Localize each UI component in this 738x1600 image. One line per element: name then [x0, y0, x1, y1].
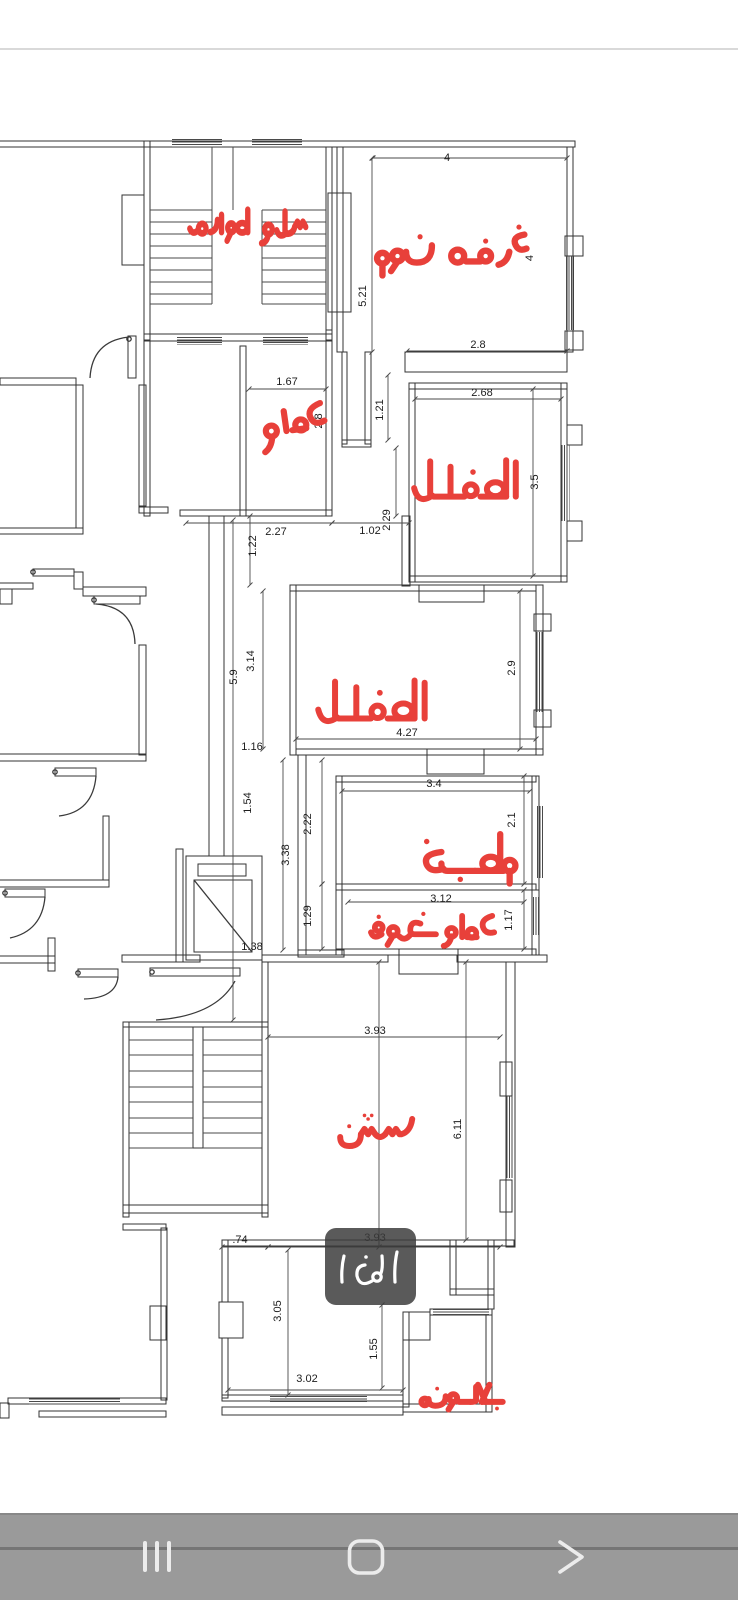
svg-text:5.21: 5.21 — [357, 285, 369, 306]
svg-text:5.9: 5.9 — [228, 669, 240, 684]
svg-text:1.54: 1.54 — [242, 792, 254, 813]
svg-text:2.1: 2.1 — [506, 812, 518, 827]
svg-text:2.8: 2.8 — [470, 339, 485, 351]
svg-text:3.12: 3.12 — [430, 893, 451, 905]
svg-text:3.4: 3.4 — [426, 778, 441, 790]
svg-text:2.68: 2.68 — [471, 387, 492, 399]
svg-text:4: 4 — [524, 255, 536, 261]
svg-text:1.17: 1.17 — [503, 909, 515, 930]
svg-text:3.5: 3.5 — [529, 474, 541, 489]
svg-text:.74: .74 — [232, 1234, 247, 1246]
svg-text:2.29: 2.29 — [381, 509, 393, 530]
svg-text:1.16: 1.16 — [241, 741, 262, 753]
svg-text:1.55: 1.55 — [368, 1338, 380, 1359]
svg-text:3.02: 3.02 — [296, 1373, 317, 1385]
svg-text:1.38: 1.38 — [241, 941, 262, 953]
svg-text:4.27: 4.27 — [396, 727, 417, 739]
svg-text:1.21: 1.21 — [374, 399, 386, 420]
svg-text:6.11: 6.11 — [452, 1119, 464, 1140]
svg-text:4: 4 — [444, 152, 450, 164]
svg-text:2.9: 2.9 — [506, 660, 518, 675]
svg-text:3.38: 3.38 — [280, 844, 292, 865]
svg-text:1.29: 1.29 — [302, 905, 314, 926]
svg-text:1.67: 1.67 — [276, 376, 297, 388]
svg-text:2.27: 2.27 — [265, 526, 286, 538]
svg-text:1.22: 1.22 — [247, 535, 259, 556]
svg-text:3.05: 3.05 — [272, 1300, 284, 1321]
svg-text:1.02: 1.02 — [359, 525, 380, 537]
svg-text:3.14: 3.14 — [245, 650, 257, 671]
svg-text:3.93: 3.93 — [364, 1025, 385, 1037]
svg-text:2.22: 2.22 — [302, 813, 314, 834]
